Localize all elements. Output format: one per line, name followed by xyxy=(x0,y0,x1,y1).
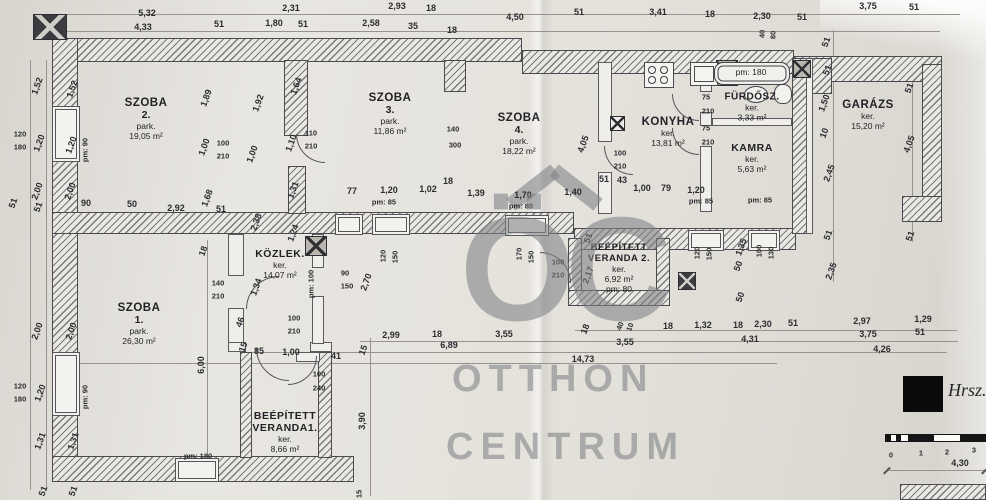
room-label-szoba2: SZOBA 2. park. 19,05 m² xyxy=(125,97,168,141)
dimension-label: 14,73 xyxy=(572,354,595,364)
dimension-label: 150 xyxy=(527,251,536,264)
dimension-label: 51 xyxy=(903,82,916,95)
dimension-label: 4,31 xyxy=(741,334,759,344)
dimension-label: 120 xyxy=(379,250,388,263)
dimension-label: pm: 85 xyxy=(689,197,713,206)
dimension-label: pm: 80 xyxy=(509,202,533,211)
dimension-label: 210 xyxy=(217,152,230,161)
dimension-label: 1,02 xyxy=(419,184,437,194)
dimension-label: 18 xyxy=(447,25,457,35)
dimension-label: 300 xyxy=(449,141,462,150)
dimension-label: 150 xyxy=(705,248,714,261)
dimension-label: 51 xyxy=(37,485,50,498)
wall-segment xyxy=(284,60,308,136)
wall-segment xyxy=(228,234,244,276)
dimension-label: 15 xyxy=(355,490,364,498)
dimension-label: 51 xyxy=(904,230,917,243)
dimension-label: 1,52 xyxy=(29,76,44,96)
room-label-szoba3: SZOBA 3. park. 11,86 m² xyxy=(369,92,412,136)
dimension-label: pm: 90 xyxy=(81,385,90,409)
dimension-line xyxy=(886,470,986,471)
room-label-szoba1: SZOBA 1. park. 26,30 m² xyxy=(118,302,161,346)
dimension-label: 80 xyxy=(769,31,778,39)
dimension-label: 1,92 xyxy=(250,93,265,113)
room-label-furdosz-pm: pm: 180 xyxy=(736,67,767,77)
dimension-label: 18 xyxy=(443,176,453,186)
dimension-label: 4,26 xyxy=(873,344,891,354)
dimension-label: 51 xyxy=(820,36,833,49)
window-symbol xyxy=(52,352,80,416)
dimension-line xyxy=(46,60,47,490)
dimension-label: 1,80 xyxy=(265,18,283,28)
dimension-label: 210 xyxy=(702,138,715,147)
dimension-label: 3,55 xyxy=(616,337,634,347)
dimension-label: 1,39 xyxy=(467,188,485,198)
dimension-label: 140 xyxy=(447,125,460,134)
dimension-line xyxy=(55,363,777,364)
dimension-label: 1 xyxy=(919,449,923,458)
window-symbol xyxy=(372,214,410,235)
dimension-label: 51 xyxy=(32,201,45,214)
window-symbol xyxy=(52,106,80,162)
wall-segment xyxy=(656,238,670,298)
floor-plan: SZOBA 2. park. 19,05 m² SZOBA 3. park. 1… xyxy=(0,0,986,500)
dimension-label: 2,30 xyxy=(753,11,771,21)
dimension-label: 51 xyxy=(915,327,925,337)
dimension-label: 210 xyxy=(614,162,627,171)
dimension-tick xyxy=(981,467,986,474)
dimension-label: 3,90 xyxy=(357,412,367,430)
dimension-label: 1,29 xyxy=(914,314,932,324)
dimension-label: 1,00 xyxy=(244,144,259,164)
dimension-label: 1,20 xyxy=(380,185,398,195)
dimension-label: 2,97 xyxy=(853,316,871,326)
dimension-label: 2,99 xyxy=(382,330,400,340)
dimension-label: pm: 85 xyxy=(372,198,396,207)
dimension-label: 3,75 xyxy=(859,329,877,339)
dimension-label: 210 xyxy=(702,107,715,116)
wall-segment xyxy=(312,296,324,344)
dimension-label: 51 xyxy=(574,7,584,17)
dimension-label: pm: 180 xyxy=(184,452,212,461)
dimension-label: 2,00 xyxy=(29,181,44,201)
dimension-label: 180 xyxy=(14,395,27,404)
dimension-label: 120 xyxy=(14,130,27,139)
dimension-label: 90 xyxy=(341,269,349,278)
room-label-kozlek: KÖZLEK. ker. 14,07 m² xyxy=(255,248,305,280)
dimension-label: 43 xyxy=(617,175,627,185)
dimension-label: 150 xyxy=(341,282,354,291)
dimension-label: 130 xyxy=(767,247,776,260)
dimension-label: 1,50 xyxy=(816,93,831,113)
dimension-label: 100 xyxy=(755,245,764,258)
wall-segment xyxy=(806,58,813,234)
dimension-label: 51 xyxy=(214,19,224,29)
dimension-label: 2,30 xyxy=(754,319,772,329)
dimension-label: 100 xyxy=(614,149,627,158)
dimension-label: 75 xyxy=(702,93,710,102)
paper-edge-light xyxy=(938,0,986,500)
wall-segment xyxy=(240,352,252,458)
dimension-line xyxy=(245,352,947,353)
dimension-label: 120 xyxy=(14,382,27,391)
kitchen-unit-icon xyxy=(610,116,625,131)
dimension-label: 51 xyxy=(599,174,609,184)
wall-segment xyxy=(568,238,582,294)
wall-segment xyxy=(318,352,332,458)
dimension-label: 1,70 xyxy=(514,190,532,200)
room-label-garazs: GARÁZS ker. 15,20 m² xyxy=(842,99,894,131)
dimension-label: 2,92 xyxy=(167,203,185,213)
room-label-szoba4: SZOBA 4. park. 18,22 m² xyxy=(498,112,541,156)
dimension-label: 41 xyxy=(331,351,341,361)
dimension-label: 110 xyxy=(305,129,317,138)
dimension-label: 2,35 xyxy=(823,261,838,281)
dimension-label: 1,89 xyxy=(198,88,213,108)
dimension-label: 51 xyxy=(797,12,807,22)
dimension-label: 2,00 xyxy=(29,321,44,341)
dimension-label: 1,00 xyxy=(196,137,211,157)
dimension-label: pm: 85 xyxy=(748,196,772,205)
window-symbol xyxy=(505,215,549,236)
dimension-line xyxy=(60,31,940,32)
dimension-label: 50 xyxy=(732,260,745,273)
dimension-label: 6,89 xyxy=(440,340,458,350)
dimension-label: 240 xyxy=(313,384,326,393)
dimension-label: 1,20 xyxy=(31,133,46,153)
dimension-label: 85 xyxy=(254,346,264,356)
dimension-label: 77 xyxy=(347,186,357,196)
watermark-line2: CENTRUM xyxy=(446,426,685,469)
dimension-label: 18 xyxy=(432,329,442,339)
dimension-label: 120 xyxy=(693,247,702,260)
dimension-label: 3,75 xyxy=(859,1,877,11)
dimension-label: 1,10 xyxy=(283,133,298,153)
wall-segment xyxy=(52,212,574,234)
dimension-label: 210 xyxy=(305,142,318,151)
door-opening xyxy=(175,458,219,482)
dimension-label: 35 xyxy=(408,21,418,31)
dimension-label: 1,20 xyxy=(687,185,705,195)
room-label-veranda2: BEÉPÍTETT VERANDA 2. ker. 6,92 m² pm: 80 xyxy=(588,242,650,294)
room-label-kamra: KAMRA ker. 5,63 m² xyxy=(731,142,773,174)
wall-segment xyxy=(52,38,522,62)
dimension-label: 4,05 xyxy=(575,134,590,154)
dimension-label: 3,55 xyxy=(495,329,513,339)
dimension-label: 0 xyxy=(889,451,893,460)
dimension-label: 5,32 xyxy=(138,8,156,18)
dimension-label: 51 xyxy=(67,485,80,498)
dimension-label: 100 xyxy=(217,139,230,148)
dimension-label: 210 xyxy=(552,271,565,280)
dimension-label: 18 xyxy=(579,323,592,336)
dimension-label: 75 xyxy=(702,124,710,133)
dimension-label: 100 xyxy=(288,314,301,323)
dimension-label: pm: 100 xyxy=(307,270,316,298)
dimension-label: 2,45 xyxy=(821,163,836,183)
room-label-furdosz: FÜRDŐSZ. ker. 3,33 m² xyxy=(724,92,779,123)
dimension-label: 1,40 xyxy=(564,187,582,197)
wall-segment xyxy=(922,64,942,204)
chimney-icon xyxy=(33,14,67,40)
dimension-label: 210 xyxy=(288,327,301,336)
dimension-label: 18 xyxy=(426,3,436,13)
wall-segment xyxy=(900,484,986,500)
dimension-label: 18 xyxy=(733,320,743,330)
chimney-icon xyxy=(793,60,811,78)
dimension-label: 1,00 xyxy=(633,183,651,193)
dimension-label: 180 xyxy=(14,143,27,152)
dimension-label: 170 xyxy=(515,248,524,261)
dimension-label: 79 xyxy=(661,183,671,193)
dimension-label: 4,33 xyxy=(134,22,152,32)
dimension-label: 40 xyxy=(758,30,767,38)
dimension-label: 4,30 xyxy=(951,458,969,468)
hrsz-label: Hrsz. xyxy=(948,380,986,401)
dimension-line xyxy=(30,60,31,490)
dimension-label: 2,70 xyxy=(358,272,373,292)
dimension-label: 15 xyxy=(357,344,370,357)
dimension-line xyxy=(207,240,208,458)
dimension-label: 2,58 xyxy=(362,18,380,28)
dimension-label: 51 xyxy=(7,197,20,210)
dimension-label: 1,68 xyxy=(199,188,214,208)
window-symbol xyxy=(335,214,363,235)
dimension-label: 3 xyxy=(972,446,976,455)
dimension-label: 2,31 xyxy=(282,3,300,13)
dimension-label: 2 xyxy=(945,448,949,457)
dimension-label: 4,05 xyxy=(901,134,916,154)
dimension-label: 140 xyxy=(212,279,225,288)
dimension-label: 51 xyxy=(298,19,308,29)
dimension-label: 150 xyxy=(391,251,400,264)
dimension-label: 1,32 xyxy=(694,320,712,330)
dimension-label: 90 xyxy=(81,198,91,208)
dimension-line xyxy=(370,338,371,496)
dimension-label: 51 xyxy=(788,318,798,328)
dimension-label: pm: 90 xyxy=(81,138,90,162)
dimension-label: 3,41 xyxy=(649,7,667,17)
dimension-label: 10 xyxy=(818,127,831,140)
dimension-label: 1,00 xyxy=(282,347,300,357)
room-label-veranda1: BEÉPÍTETT VERANDA1. ker. 8,66 m² xyxy=(252,410,317,454)
dimension-label: 18 xyxy=(705,9,715,19)
scale-bar xyxy=(885,434,986,442)
watermark-line1: OTTHON xyxy=(452,358,654,401)
dimension-label: 51 xyxy=(909,2,919,12)
dimension-label: 50 xyxy=(127,199,137,209)
dimension-label: 100 xyxy=(313,370,326,379)
dimension-label: 4,50 xyxy=(506,12,524,22)
dimension-label: 18 xyxy=(663,321,673,331)
room-label-konyha: KONYHA ker. 13,81 m² xyxy=(642,116,695,148)
photo-corner-light xyxy=(820,0,986,60)
chimney-icon xyxy=(678,272,696,290)
dimension-label: 100 xyxy=(552,258,565,267)
chimney-icon xyxy=(305,236,327,256)
dimension-label: 51 xyxy=(216,204,226,214)
redaction-square xyxy=(903,376,943,412)
wall-segment xyxy=(444,60,466,92)
dimension-label: 6,00 xyxy=(196,356,206,374)
dimension-label: 210 xyxy=(212,292,225,301)
dimension-label: 2,93 xyxy=(388,1,406,11)
dimension-label: 50 xyxy=(734,291,747,304)
wall-segment xyxy=(902,196,942,222)
stove-icon xyxy=(644,62,674,88)
